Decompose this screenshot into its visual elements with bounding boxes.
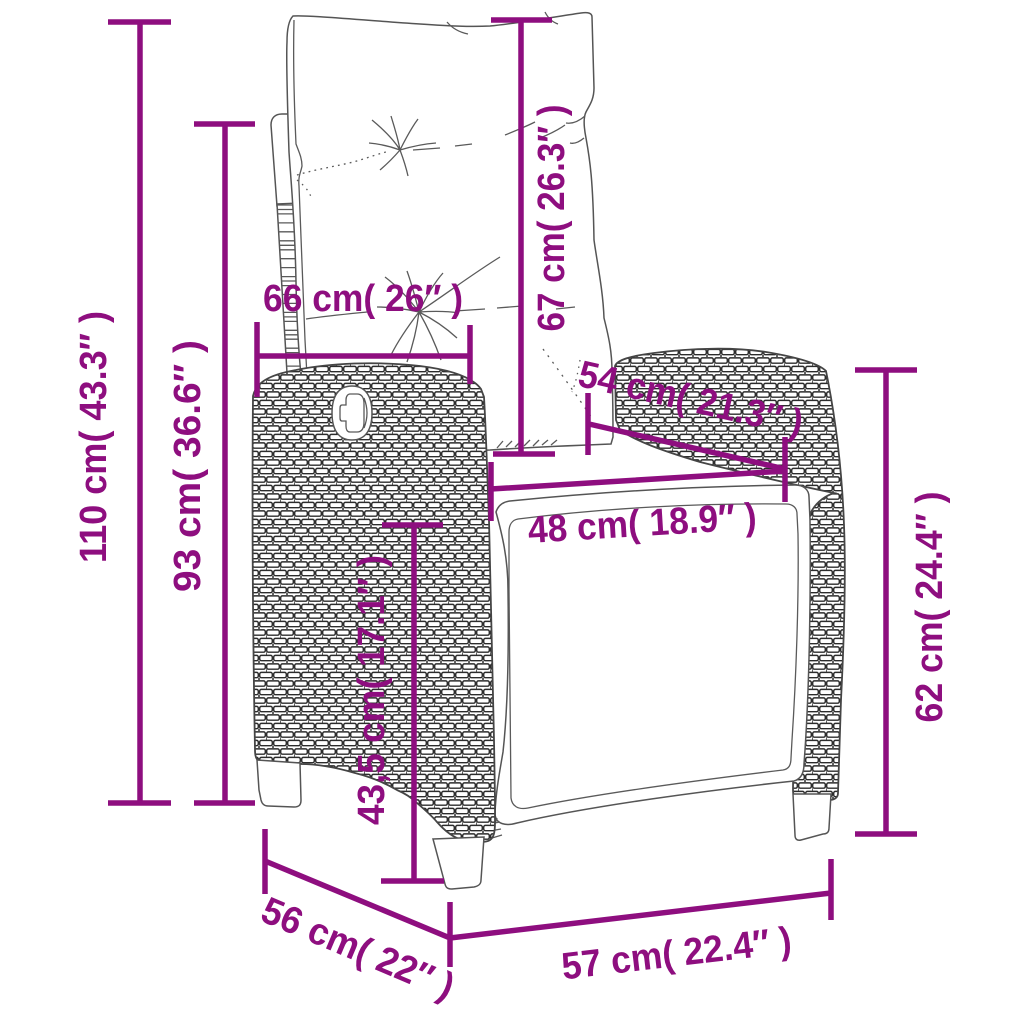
svg-text:62 cm( 24.4″ ): 62 cm( 24.4″ ) <box>909 492 951 723</box>
svg-text:67 cm( 26.3″ ): 67 cm( 26.3″ ) <box>531 105 573 332</box>
svg-text:66 cm( 26″ ): 66 cm( 26″ ) <box>263 278 463 320</box>
svg-text:43,5 cm( 17.1″ ): 43,5 cm( 17.1″ ) <box>351 555 393 825</box>
svg-text:93 cm( 36.6″ ): 93 cm( 36.6″ ) <box>167 340 209 592</box>
svg-text:56 cm( 22″ ): 56 cm( 22″ ) <box>255 890 460 1009</box>
svg-text:57 cm( 22.4″ ): 57 cm( 22.4″ ) <box>559 920 793 989</box>
svg-text:110 cm( 43.3″ ): 110 cm( 43.3″ ) <box>73 311 115 563</box>
